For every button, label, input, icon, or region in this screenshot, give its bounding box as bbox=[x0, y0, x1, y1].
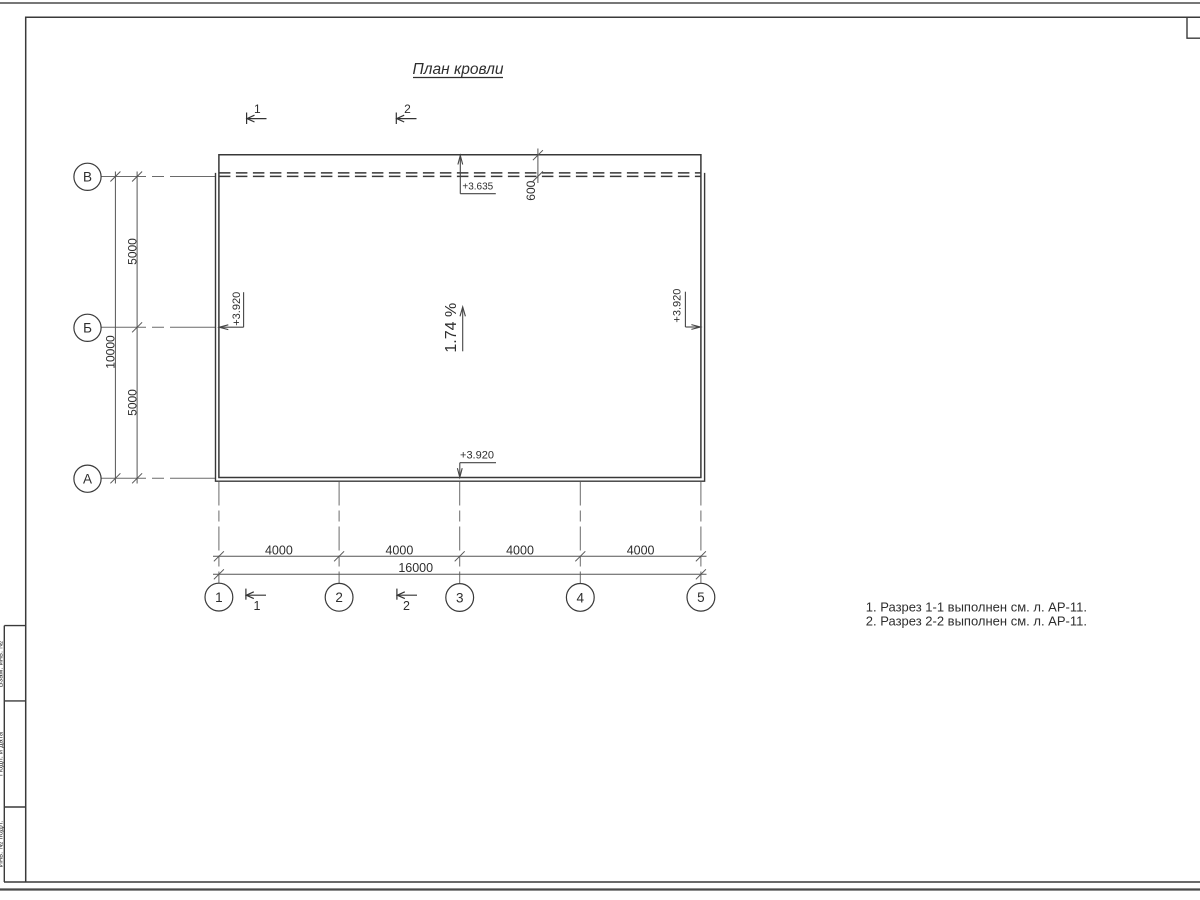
svg-text:2: 2 bbox=[335, 590, 343, 605]
svg-text:600: 600 bbox=[524, 180, 538, 200]
svg-text:5000: 5000 bbox=[126, 389, 140, 416]
svg-text:3: 3 bbox=[456, 590, 464, 605]
svg-text:4000: 4000 bbox=[627, 543, 655, 557]
svg-text:В: В bbox=[83, 170, 92, 185]
svg-text:+3.920: +3.920 bbox=[460, 450, 494, 462]
svg-text:2: 2 bbox=[404, 102, 411, 116]
svg-text:10000: 10000 bbox=[103, 335, 117, 369]
svg-text:+3.920: +3.920 bbox=[231, 292, 243, 326]
svg-text:+3.635: +3.635 bbox=[462, 181, 493, 192]
svg-text:2. Разрез 2-2 выполнен см. л.: 2. Разрез 2-2 выполнен см. л. АР-11. bbox=[866, 613, 1087, 628]
svg-text:+3.920: +3.920 bbox=[672, 289, 684, 323]
svg-text:План кровли: План кровли bbox=[413, 61, 504, 78]
svg-text:Б: Б bbox=[83, 321, 92, 336]
svg-text:2: 2 bbox=[403, 599, 410, 613]
svg-text:5000: 5000 bbox=[126, 238, 140, 265]
svg-text:4000: 4000 bbox=[506, 543, 534, 557]
svg-text:Подп. и дата: Подп. и дата bbox=[0, 731, 5, 776]
svg-text:1.74 %: 1.74 % bbox=[443, 303, 460, 353]
svg-text:1. Разрез 1-1 выполнен см. л.: 1. Разрез 1-1 выполнен см. л. АР-11. bbox=[866, 599, 1087, 614]
svg-text:Инв. № подл.: Инв. № подл. bbox=[0, 821, 5, 868]
svg-text:5: 5 bbox=[697, 590, 705, 605]
svg-text:16000: 16000 bbox=[398, 561, 433, 575]
svg-text:1: 1 bbox=[254, 599, 261, 613]
svg-text:4000: 4000 bbox=[265, 543, 293, 557]
svg-text:1: 1 bbox=[215, 590, 223, 605]
svg-text:А: А bbox=[83, 472, 92, 487]
svg-text:4: 4 bbox=[577, 590, 585, 605]
svg-text:Взам. инв. №: Взам. инв. № bbox=[0, 641, 5, 687]
svg-text:1: 1 bbox=[254, 102, 261, 116]
svg-text:4000: 4000 bbox=[385, 543, 413, 557]
